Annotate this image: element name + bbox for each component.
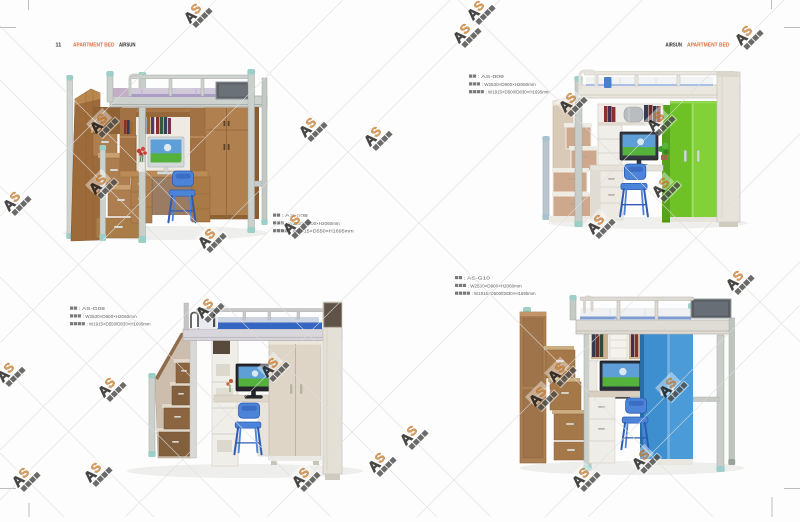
svg-text:: W1915×D500/D830×H1695mm: : W1915×D500/D830×H1695mm <box>472 291 536 296</box>
svg-text:: AS-G08: : AS-G08 <box>79 306 106 311</box>
svg-text:11: 11 <box>56 43 62 49</box>
svg-text:: W2530×D900×H2060mm: : W2530×D900×H2060mm <box>482 82 536 87</box>
svg-text:: AS-009: : AS-009 <box>478 74 505 79</box>
svg-text:: W1915×D500/D830×H1695mm: : W1915×D500/D830×H1695mm <box>486 90 550 95</box>
svg-text:APARTMENT BED: APARTMENT BED <box>73 43 115 49</box>
svg-text:AIRSUN: AIRSUN <box>119 43 136 49</box>
svg-text:: W1915×D550/D830×H1695mm: : W1915×D550/D830×H1695mm <box>87 322 151 327</box>
svg-text:APARTMENT BED: APARTMENT BED <box>687 43 730 49</box>
svg-text:AIRSUN: AIRSUN <box>666 43 683 49</box>
svg-text:: AS-G10: : AS-G10 <box>464 276 491 281</box>
svg-text:: W2530×D900×H2060mm: : W2530×D900×H2060mm <box>468 283 522 288</box>
